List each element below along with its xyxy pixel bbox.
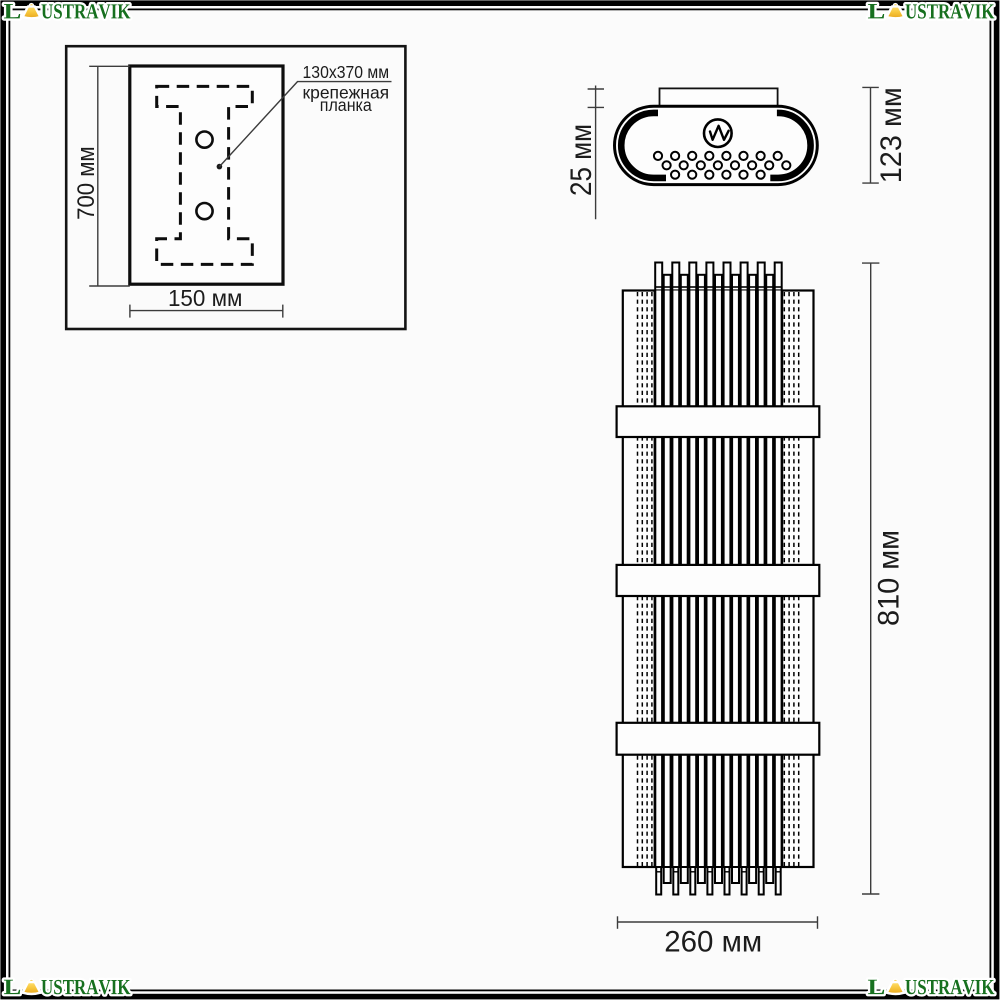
svg-text:планка: планка [320,95,372,115]
svg-text:150 мм: 150 мм [168,285,243,311]
svg-text:25 мм: 25 мм [565,124,598,196]
svg-text:700 мм: 700 мм [73,146,100,220]
svg-text:130x370 мм: 130x370 мм [303,62,390,82]
svg-text:810 мм: 810 мм [873,530,906,626]
svg-text:123 мм: 123 мм [875,87,908,183]
svg-text:260 мм: 260 мм [664,925,762,958]
